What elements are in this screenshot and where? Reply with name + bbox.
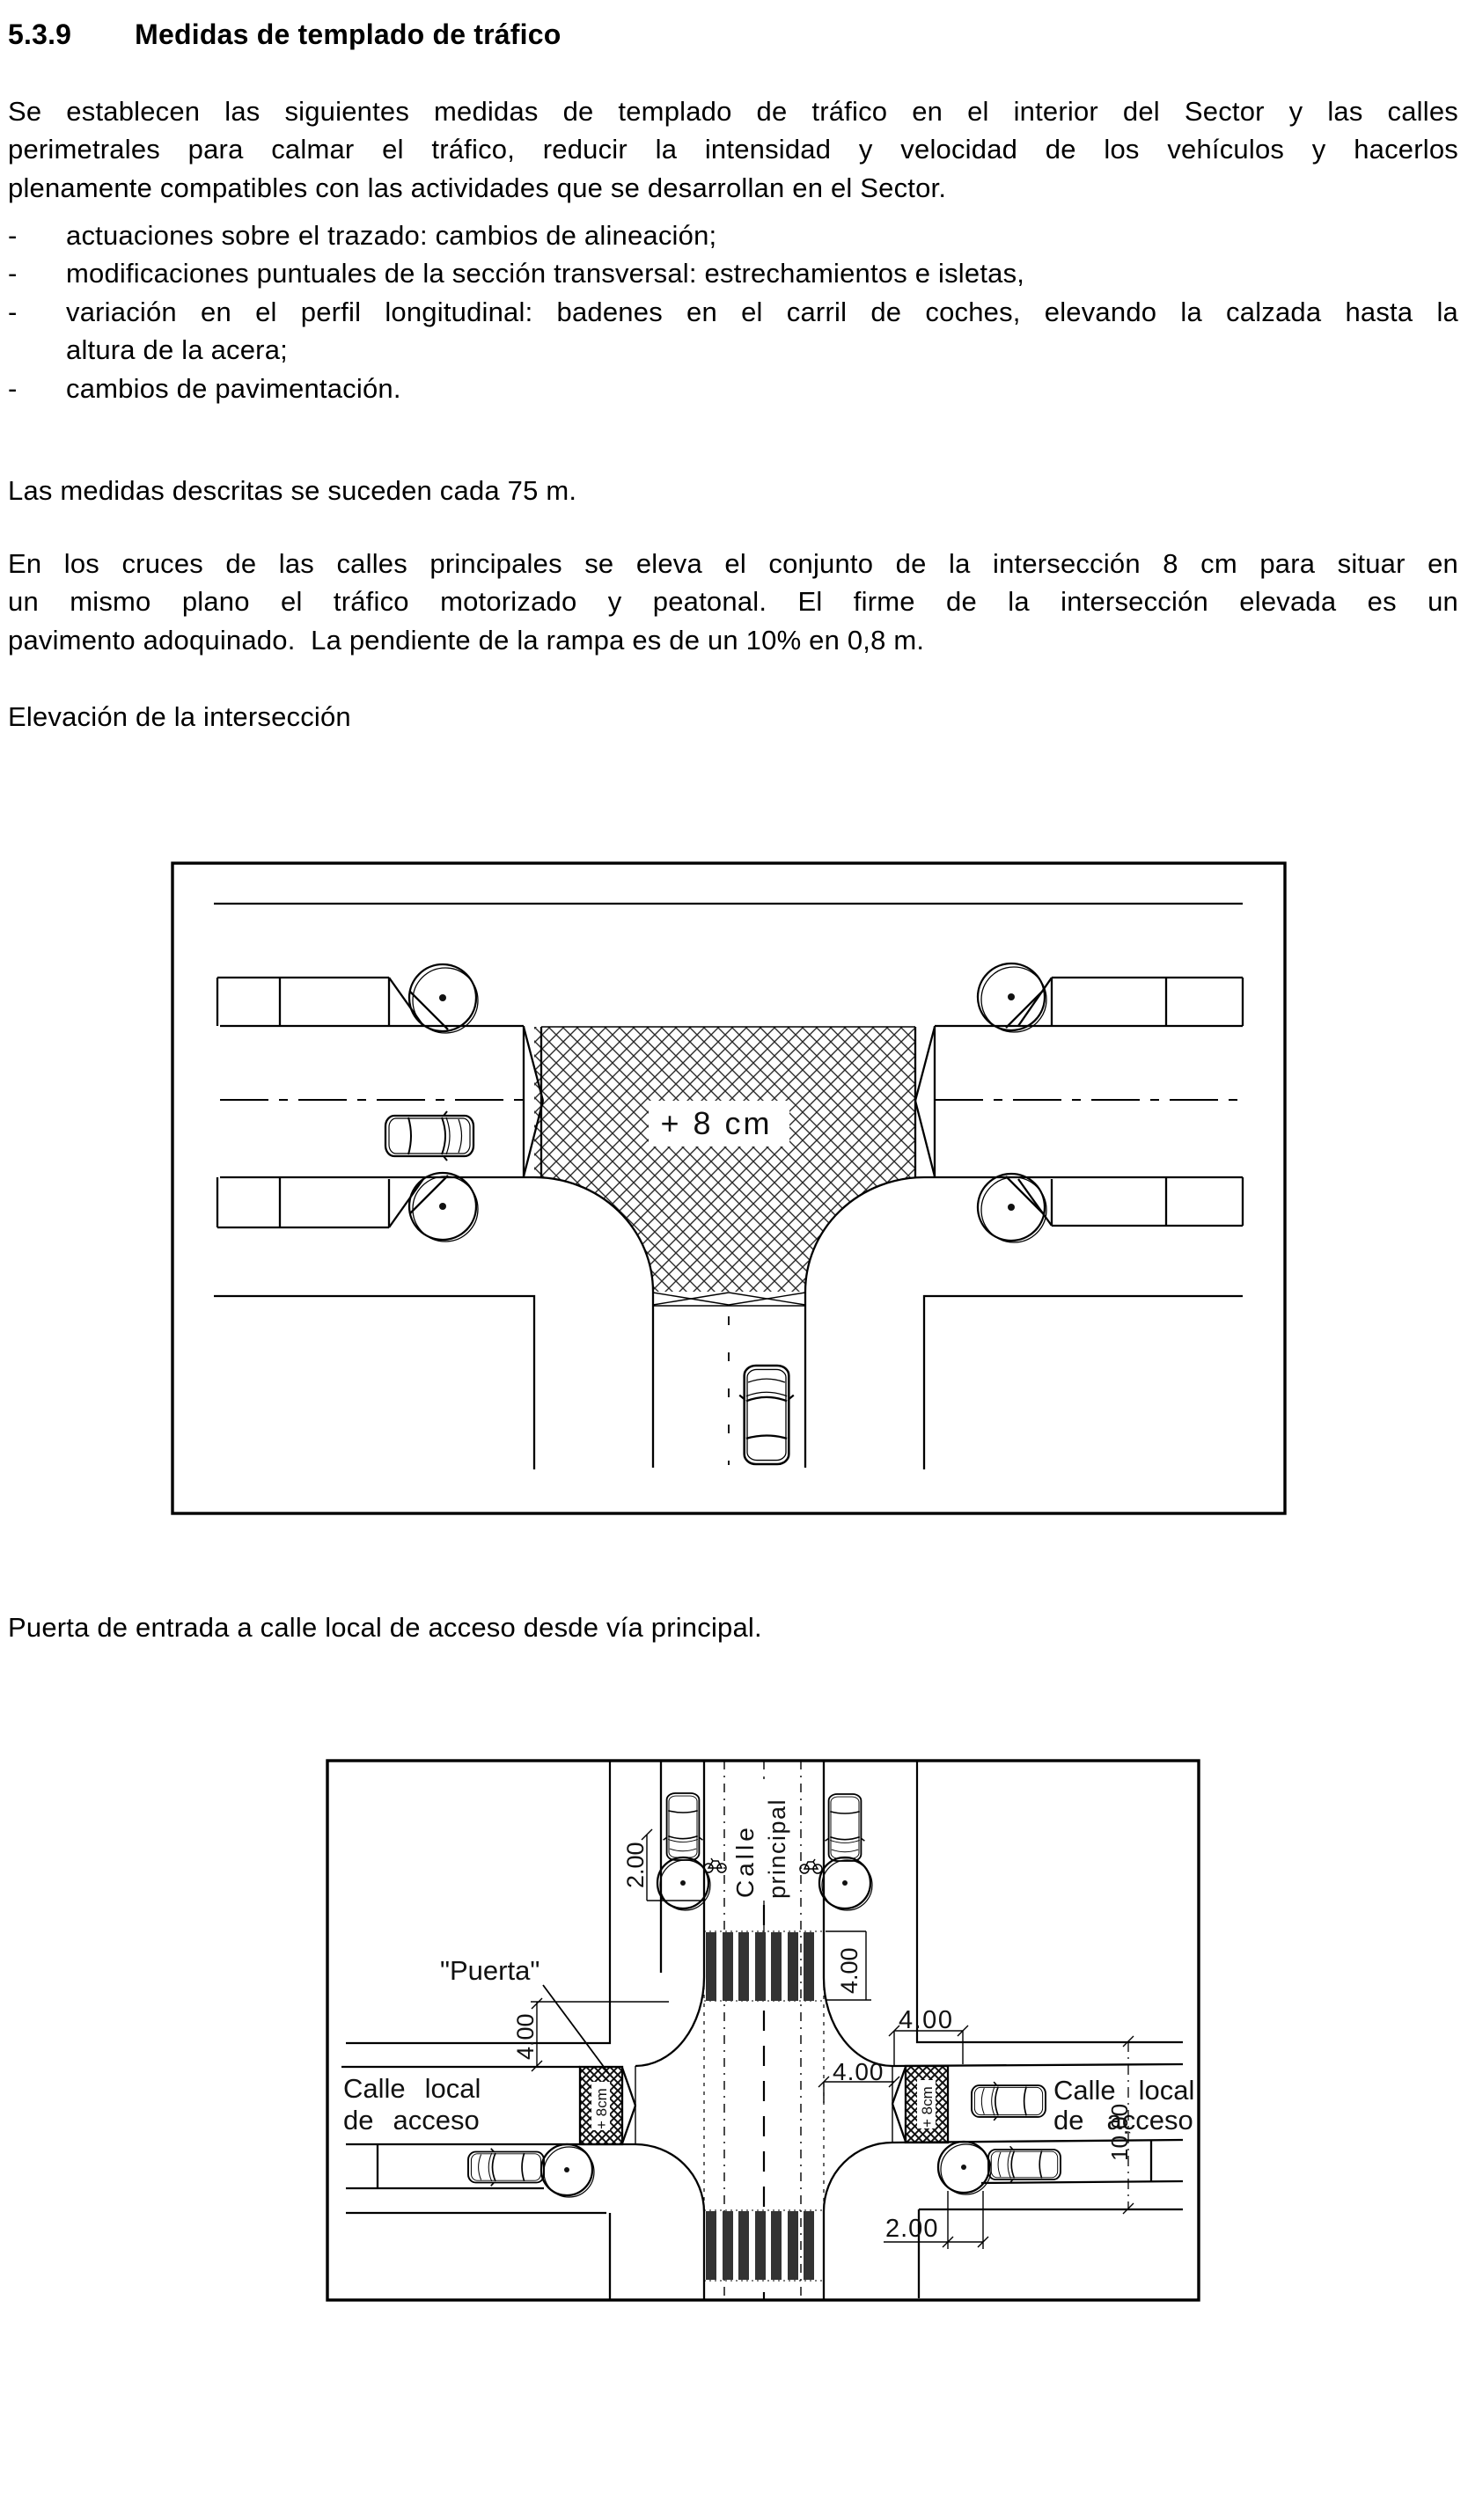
- svg-text:4.00: 4.00: [836, 1947, 862, 1994]
- svg-text:principal: principal: [764, 1798, 790, 1899]
- svg-text:2.00: 2.00: [622, 1842, 649, 1888]
- svg-text:"Puerta": "Puerta": [440, 1955, 539, 1986]
- svg-text:+ 8cm: + 8cm: [593, 2088, 610, 2129]
- svg-text:Callelocal: Callelocal: [343, 2073, 481, 2104]
- svg-text:+ 8cm: + 8cm: [919, 2086, 936, 2128]
- svg-text:4.00: 4.00: [899, 2006, 953, 2034]
- svg-text:Calle: Calle: [731, 1824, 759, 1898]
- svg-text:deacceso: deacceso: [343, 2105, 480, 2135]
- svg-text:10,00: 10,00: [1106, 2104, 1133, 2161]
- svg-text:2.00: 2.00: [885, 2215, 938, 2243]
- svg-text:Callelocal: Callelocal: [1053, 2075, 1194, 2106]
- svg-text:4.00: 4.00: [512, 2013, 539, 2060]
